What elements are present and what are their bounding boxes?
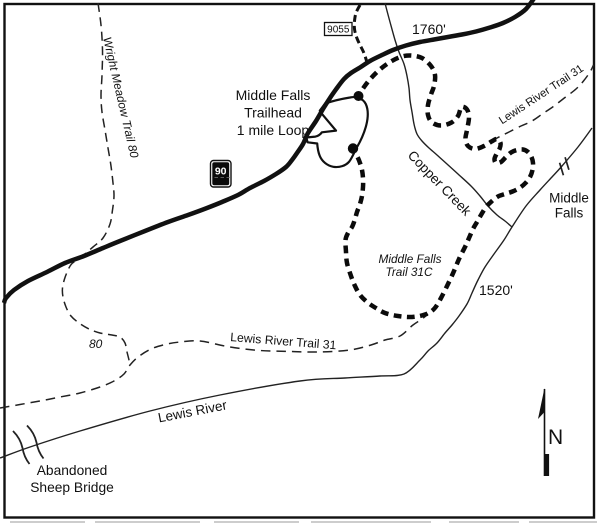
svg-text:Abandoned: Abandoned: [37, 463, 108, 478]
svg-text:1 mile Loop: 1 mile Loop: [237, 122, 310, 138]
svg-text:Middle Falls: Middle Falls: [379, 252, 442, 266]
svg-text:1520': 1520': [479, 282, 513, 298]
svg-text:9055: 9055: [327, 25, 350, 36]
svg-text:Middle Falls: Middle Falls: [236, 87, 311, 103]
svg-text:Sheep Bridge: Sheep Bridge: [30, 480, 114, 495]
svg-text:Trail 31C: Trail 31C: [386, 265, 433, 279]
svg-text:Trailhead: Trailhead: [244, 105, 302, 121]
svg-text:1760': 1760': [412, 21, 446, 37]
svg-text:Falls: Falls: [555, 206, 584, 221]
svg-text:N: N: [548, 426, 563, 449]
svg-text:80: 80: [89, 337, 103, 351]
svg-text:Middle: Middle: [549, 191, 589, 206]
svg-text:90: 90: [215, 166, 227, 178]
